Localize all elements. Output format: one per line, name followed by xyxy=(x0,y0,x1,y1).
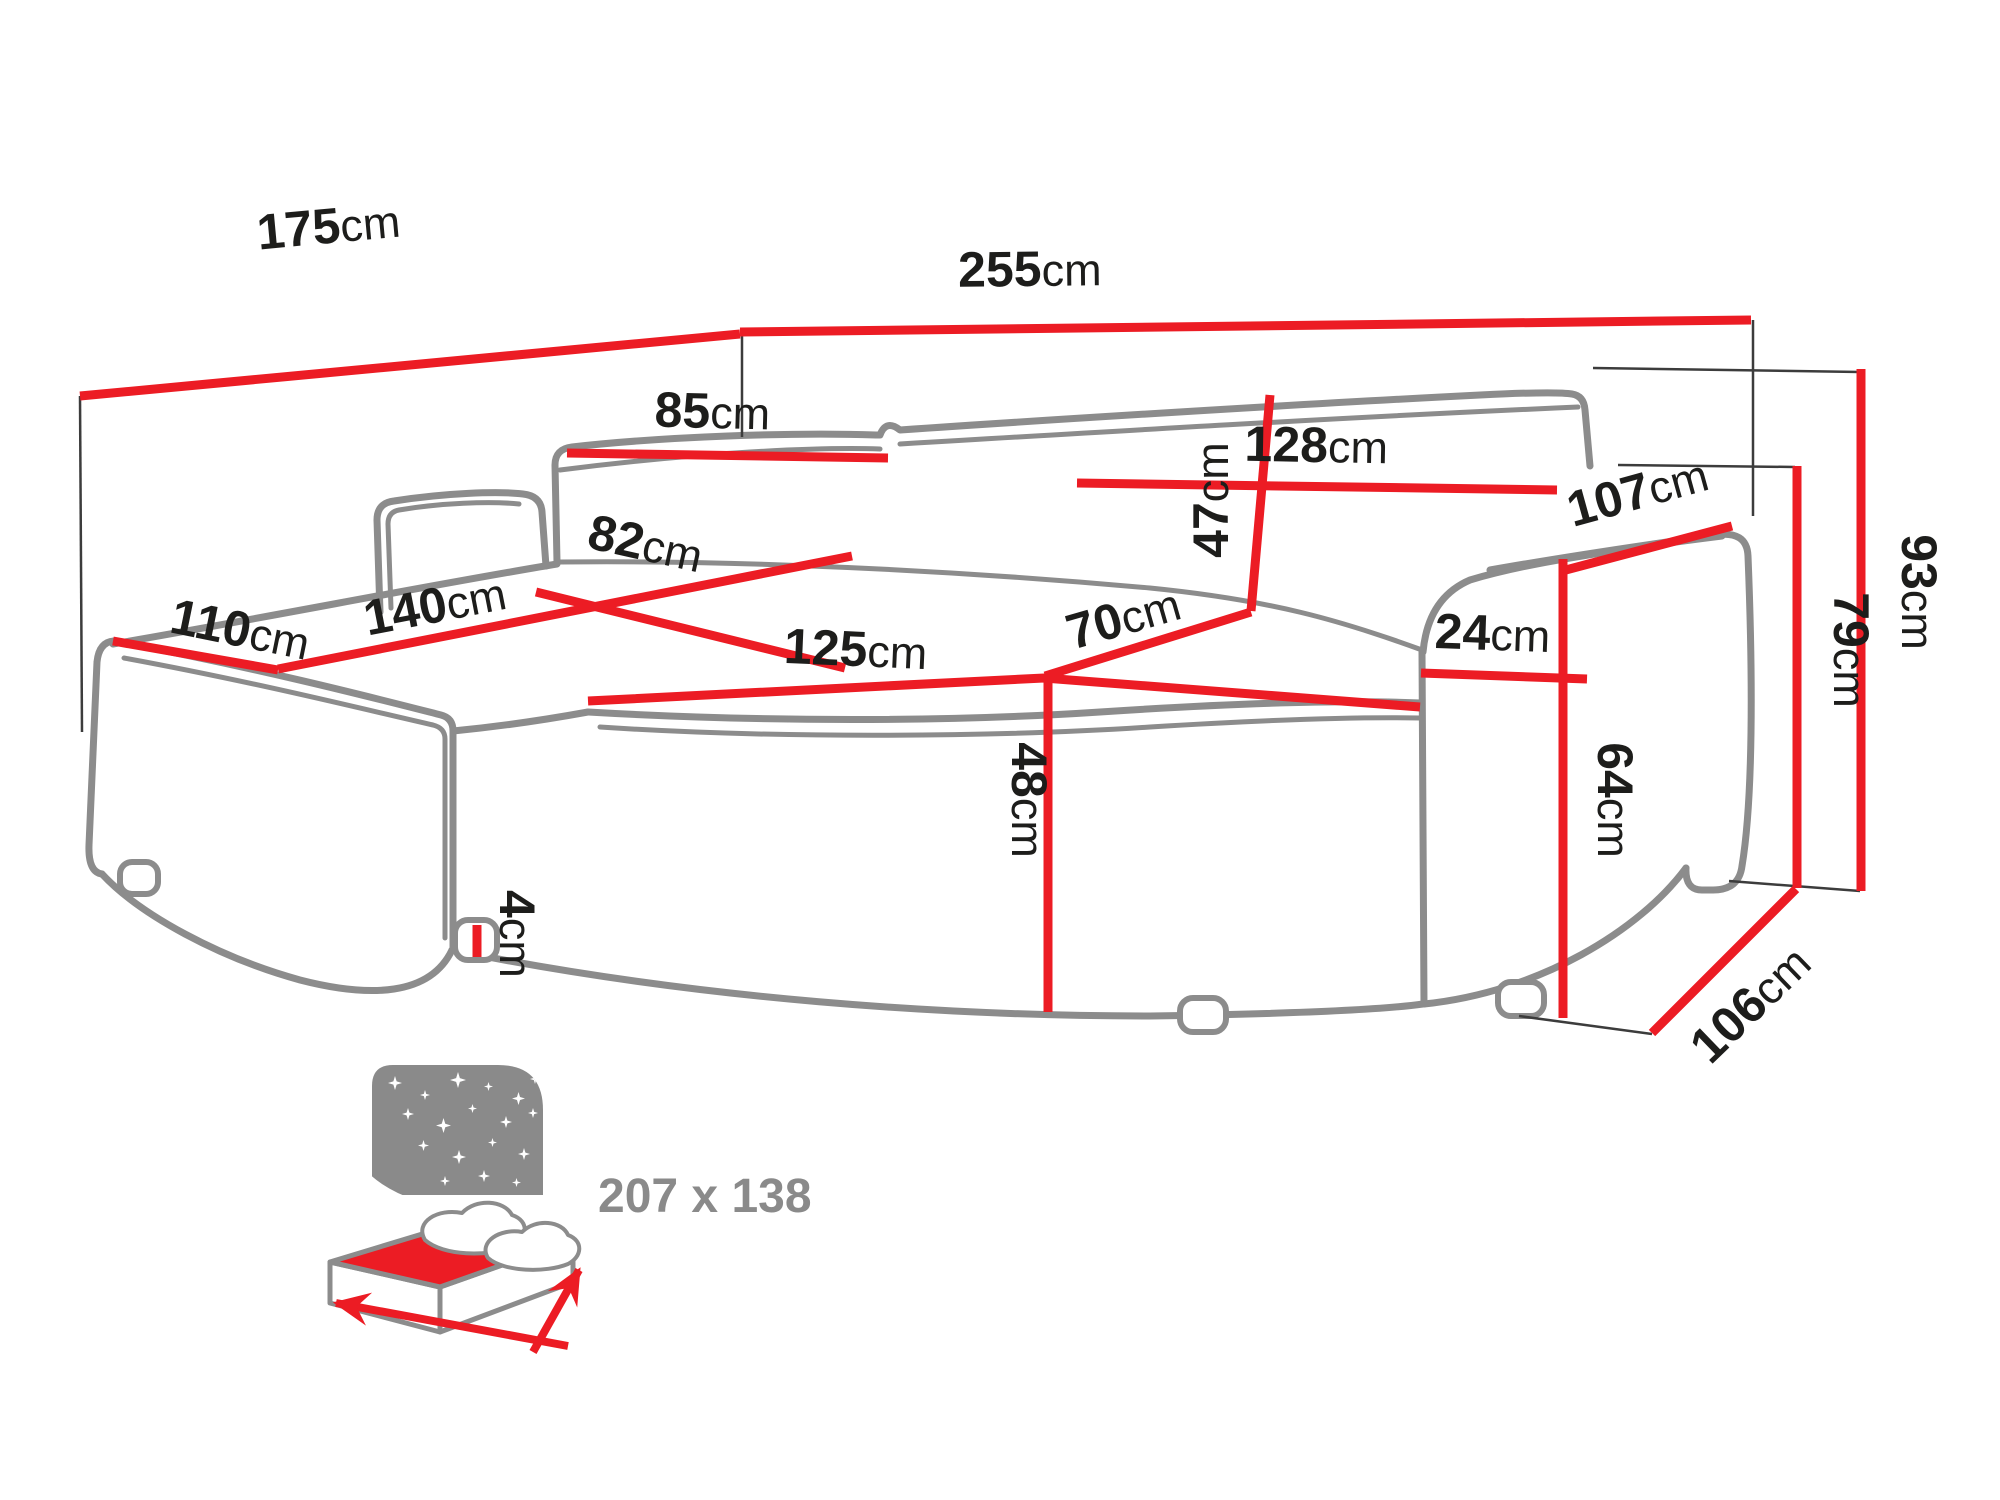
chaise-left-foot xyxy=(120,862,158,894)
dim-line-255 xyxy=(740,320,1751,332)
ext-depth-bottom xyxy=(1519,1016,1652,1034)
dim-line-128 xyxy=(1077,483,1557,490)
dim-label-175: 175cm xyxy=(254,192,402,261)
ext-left-wall xyxy=(80,396,82,732)
armrest-inner-edge xyxy=(1422,652,1424,1004)
dim-label-93: 93cm xyxy=(1891,534,1947,650)
dim-label-64: 64cm xyxy=(1587,742,1643,858)
sofa-dimension-diagram: 175cm 255cm 85cm 128cm 47cm 107cm 24cm 9… xyxy=(0,0,2000,1500)
sleeping-area-size: 207 x 138 xyxy=(598,1170,812,1223)
ext-total-height-top xyxy=(1593,368,1860,372)
dim-label-82: 82cm xyxy=(583,504,708,584)
dim-label-79: 79cm xyxy=(1823,592,1879,708)
chaise-top-seam xyxy=(124,658,445,938)
chaise-left-edge xyxy=(89,641,114,874)
dim-label-107: 107cm xyxy=(1561,445,1714,537)
dim-label-48: 48cm xyxy=(1001,742,1057,858)
dim-label-4: 4cm xyxy=(489,890,545,978)
dim-label-106: 106cm xyxy=(1679,934,1821,1074)
seat-right-foot xyxy=(1498,982,1544,1016)
dim-label-255: 255cm xyxy=(958,240,1102,297)
armrest-base-curve xyxy=(1424,868,1686,1004)
diagram-svg: 175cm 255cm 85cm 128cm 47cm 107cm 24cm 9… xyxy=(0,0,2000,1500)
dim-line-85 xyxy=(567,453,888,458)
sleeping-function-icon: 207 x 138 xyxy=(318,1065,812,1352)
dim-label-47: 47cm xyxy=(1183,442,1239,558)
dim-label-128: 128cm xyxy=(1244,416,1388,474)
seat-base-edge xyxy=(452,950,1423,1016)
seat-front-edge xyxy=(588,702,1421,720)
seat-middle-foot xyxy=(1180,998,1226,1032)
dim-label-24: 24cm xyxy=(1434,603,1552,663)
chaise-top-outer xyxy=(114,641,453,948)
dim-line-175 xyxy=(80,334,740,396)
dim-label-125: 125cm xyxy=(783,618,929,680)
dim-label-85: 85cm xyxy=(654,382,771,441)
chaise-seat-junction xyxy=(453,712,588,731)
